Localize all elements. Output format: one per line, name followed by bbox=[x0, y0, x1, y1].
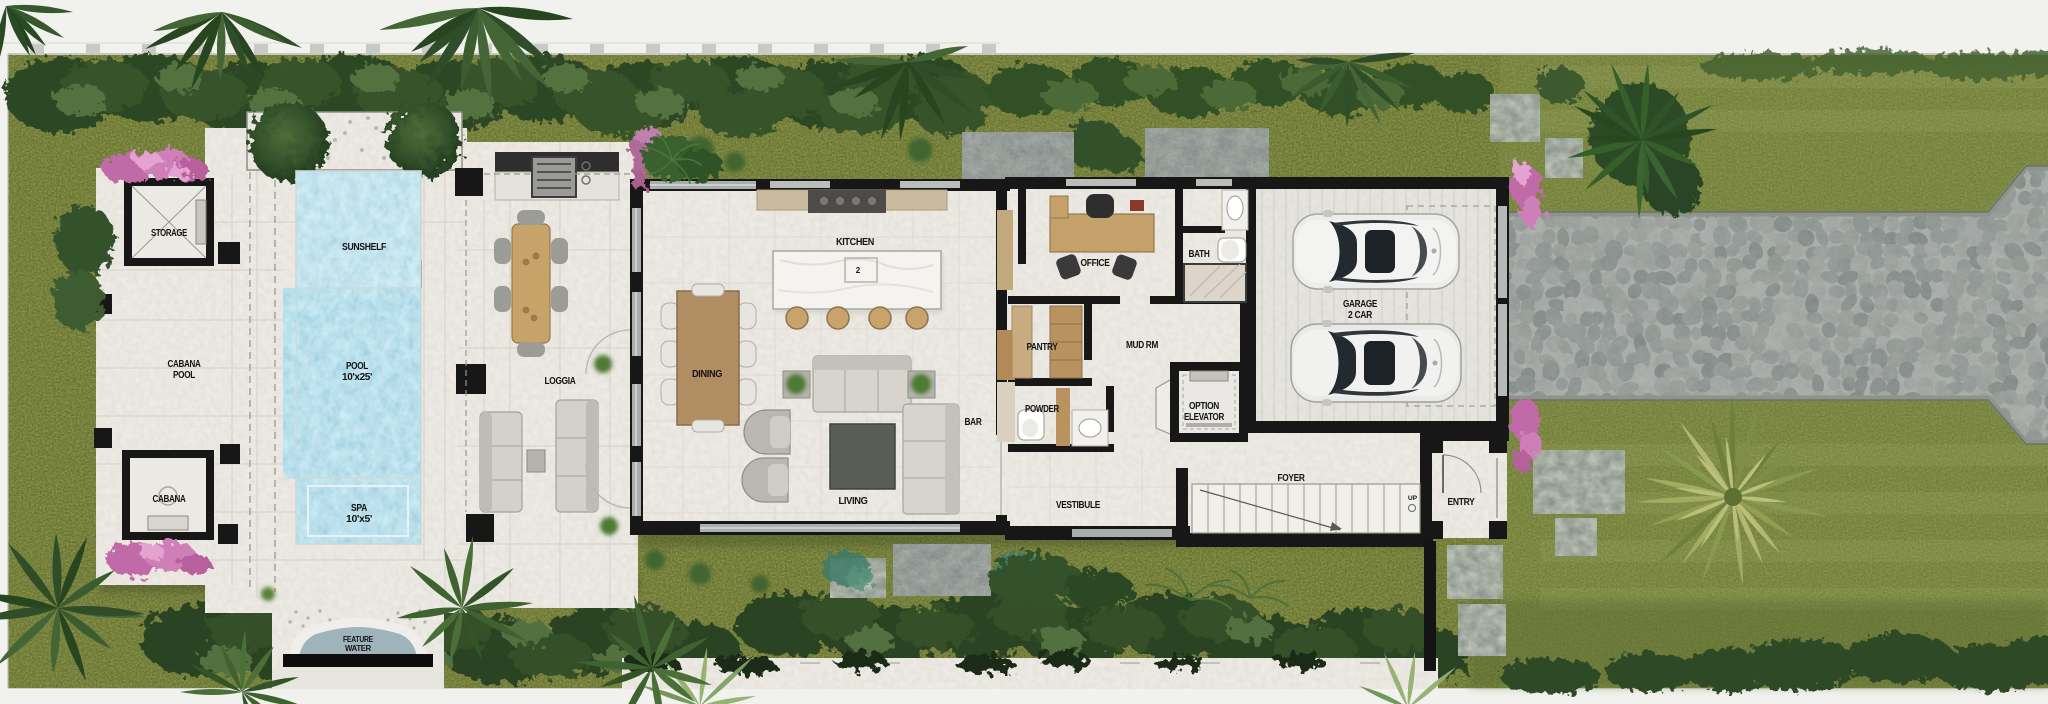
svg-text:ENTRY: ENTRY bbox=[1448, 496, 1475, 508]
svg-text:PANTRY: PANTRY bbox=[1027, 341, 1058, 353]
svg-text:OFFICE: OFFICE bbox=[1081, 257, 1110, 269]
svg-text:LIVING: LIVING bbox=[839, 495, 868, 507]
svg-text:2 CAR: 2 CAR bbox=[1348, 309, 1373, 321]
svg-text:FEATURE: FEATURE bbox=[343, 635, 374, 644]
svg-text:FOYER: FOYER bbox=[1278, 472, 1306, 484]
svg-text:CABANA: CABANA bbox=[153, 493, 187, 505]
svg-text:MUD RM: MUD RM bbox=[1126, 339, 1159, 351]
svg-text:2: 2 bbox=[856, 266, 861, 275]
svg-text:POOL: POOL bbox=[173, 369, 196, 381]
svg-text:ELEVATOR: ELEVATOR bbox=[1184, 411, 1225, 423]
svg-text:POWDER: POWDER bbox=[1025, 403, 1060, 415]
svg-text:BATH: BATH bbox=[1189, 248, 1210, 260]
svg-text:10'x25': 10'x25' bbox=[342, 371, 372, 383]
svg-text:SUNSHELF: SUNSHELF bbox=[342, 241, 387, 253]
svg-text:10'x5': 10'x5' bbox=[346, 513, 372, 525]
svg-text:STORAGE: STORAGE bbox=[151, 227, 187, 239]
svg-text:WATER: WATER bbox=[345, 644, 372, 653]
svg-text:KITCHEN: KITCHEN bbox=[836, 236, 874, 248]
svg-text:BAR: BAR bbox=[965, 416, 983, 428]
svg-text:UP: UP bbox=[1408, 495, 1418, 502]
svg-text:LOGGIA: LOGGIA bbox=[545, 375, 577, 387]
svg-text:VESTIBULE: VESTIBULE bbox=[1056, 499, 1100, 511]
svg-text:DINING: DINING bbox=[692, 368, 722, 380]
